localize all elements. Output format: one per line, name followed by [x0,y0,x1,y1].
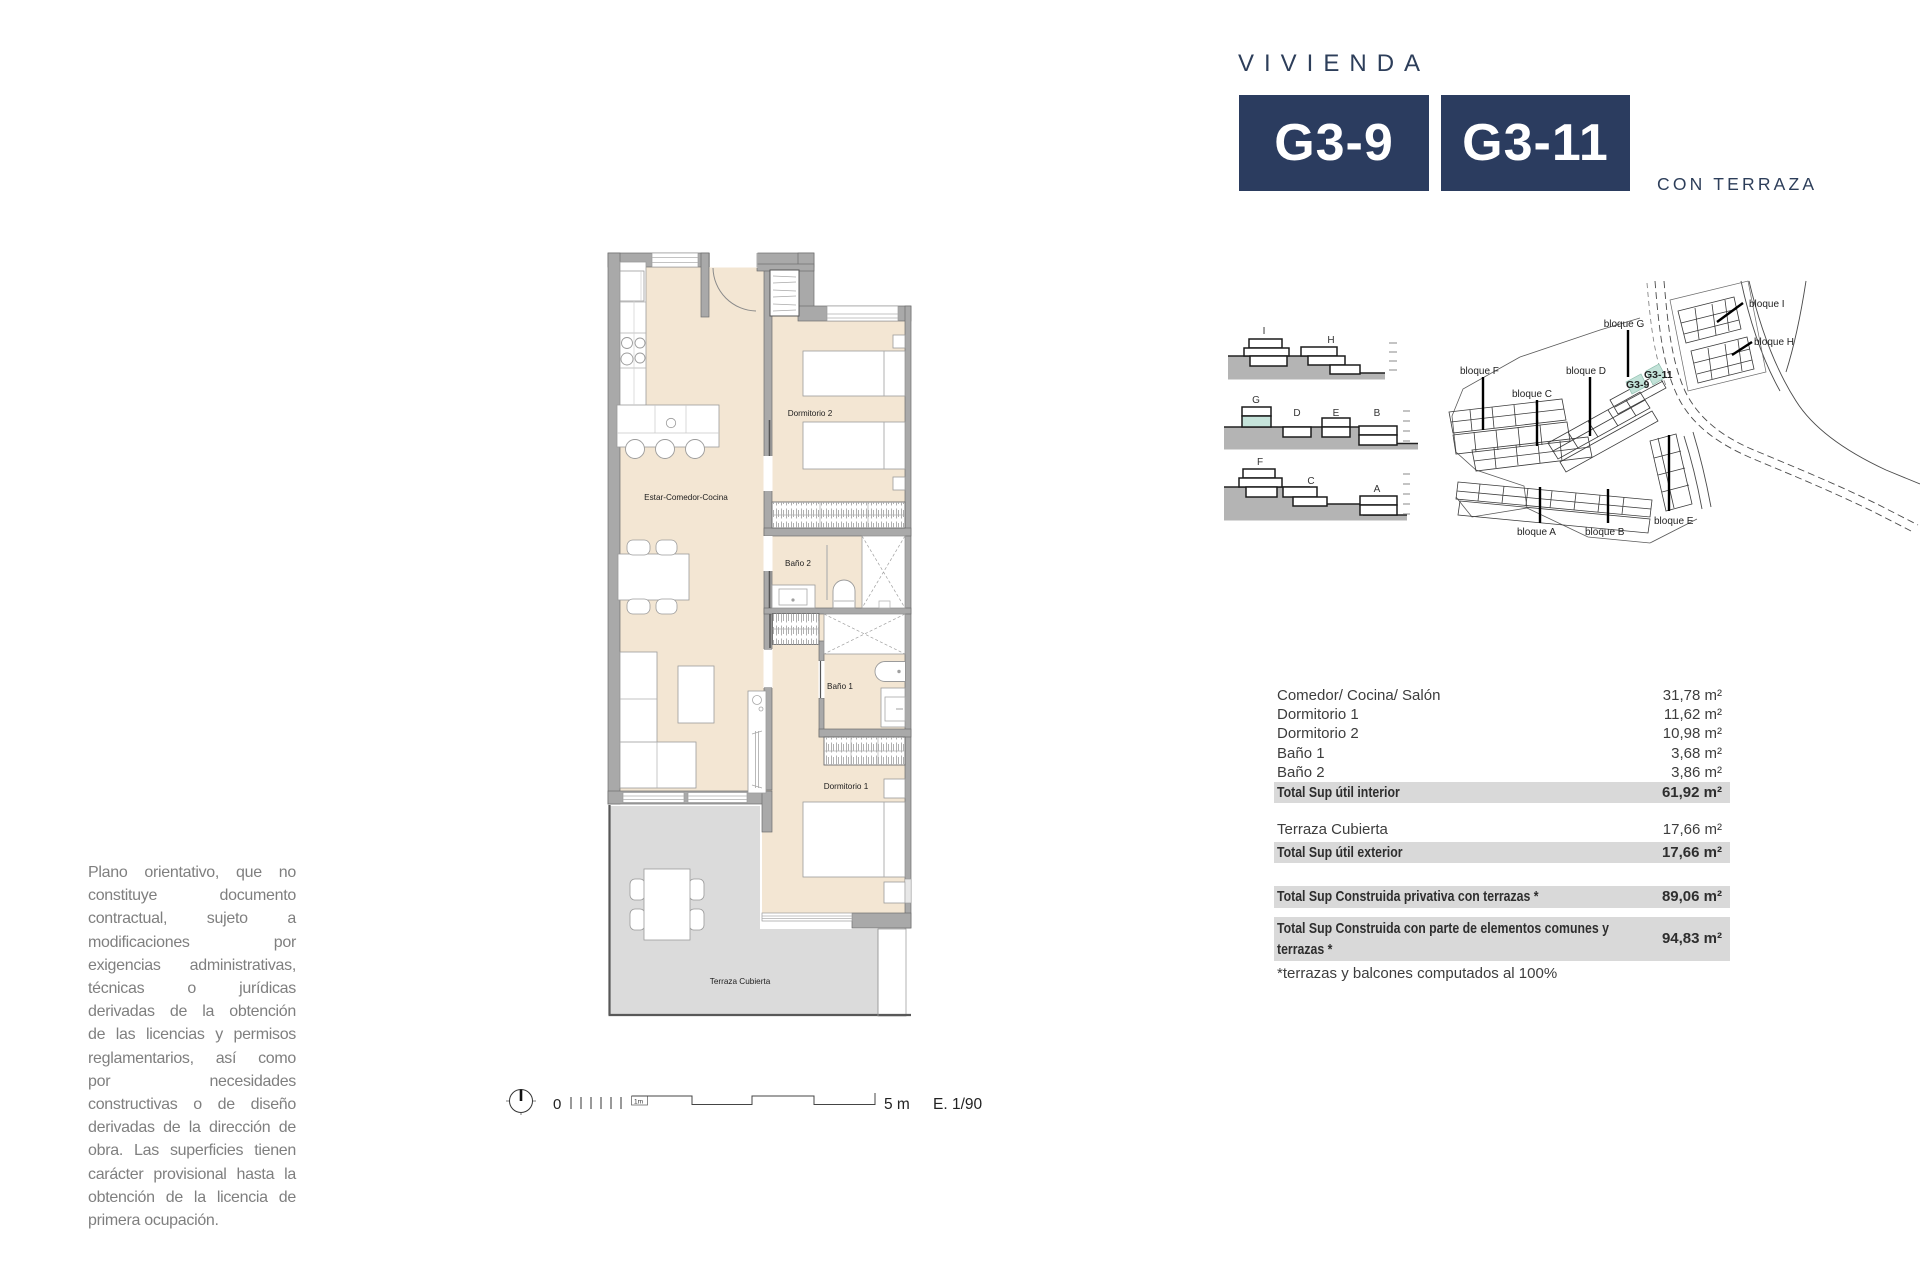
svg-text:bloque C: bloque C [1512,389,1552,400]
svg-text:A: A [1374,484,1381,495]
svg-text:1m: 1m [634,1099,643,1106]
svg-text:B: B [1374,408,1381,419]
svg-text:bloque E: bloque E [1654,516,1694,527]
svg-text:H: H [1327,335,1334,346]
svg-text:bloque F: bloque F [1460,366,1499,377]
svg-text:Dormitorio 2: Dormitorio 2 [788,409,833,418]
svg-text:Estar-Comedor-Cocina: Estar-Comedor-Cocina [644,493,728,502]
svg-text:F: F [1257,457,1263,468]
svg-text:Baño 1: Baño 1 [827,682,853,691]
svg-text:E: E [1333,408,1340,419]
svg-text:bloque I: bloque I [1749,299,1785,310]
svg-text:Dormitorio 1: Dormitorio 1 [824,782,869,791]
svg-text:E. 1/90: E. 1/90 [933,1096,982,1113]
svg-text:G3-9: G3-9 [1626,379,1650,391]
svg-text:5 m: 5 m [884,1096,910,1113]
svg-text:bloque A: bloque A [1517,527,1556,538]
svg-text:I: I [1263,326,1266,337]
svg-text:0: 0 [553,1096,561,1113]
svg-text:bloque B: bloque B [1585,527,1625,538]
svg-text:D: D [1293,408,1300,419]
svg-text:G: G [1252,395,1260,406]
svg-text:Terraza Cubierta: Terraza Cubierta [710,977,771,986]
svg-text:C: C [1307,476,1314,487]
svg-text:bloque H: bloque H [1754,337,1794,348]
svg-text:bloque G: bloque G [1604,319,1645,330]
svg-text:Baño 2: Baño 2 [785,559,811,568]
svg-text:bloque D: bloque D [1566,366,1606,377]
